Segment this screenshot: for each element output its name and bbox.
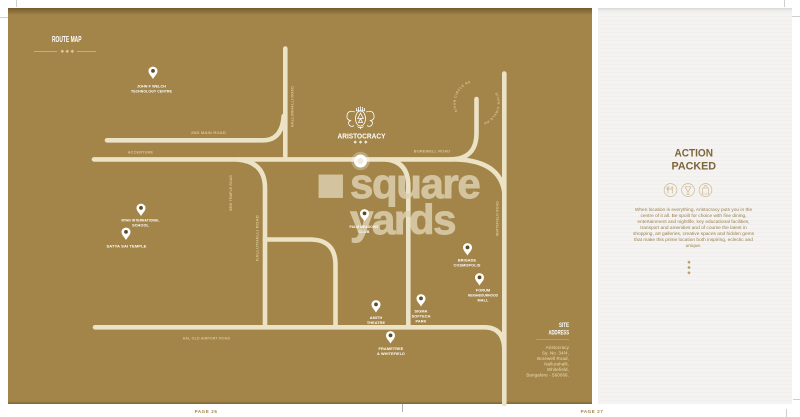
svg-text:ADDRESS: ADDRESS: [549, 330, 570, 337]
svg-text:SOFTECH: SOFTECH: [412, 315, 431, 319]
svg-text:BRIGADE: BRIGADE: [458, 259, 477, 263]
svg-text:MALL: MALL: [478, 299, 490, 303]
svg-text:JOHN F WELCH: JOHN F WELCH: [137, 85, 166, 89]
svg-text:TECHNOLOGY CENTRE: TECHNOLOGY CENTRE: [131, 90, 172, 94]
svg-text:NALLURHALLI ROAD: NALLURHALLI ROAD: [290, 86, 295, 127]
svg-text:HAL OLD AIRPORT ROAD: HAL OLD AIRPORT ROAD: [183, 336, 231, 341]
svg-text:SATYA SAI TEMPLE: SATYA SAI TEMPLE: [107, 245, 147, 249]
svg-text:ACCENTURE: ACCENTURE: [128, 150, 154, 155]
svg-text:Aristocracy: Aristocracy: [546, 345, 570, 350]
svg-text:RYAN INTERNATIONAL: RYAN INTERNATIONAL: [122, 219, 160, 223]
svg-text:Borewell Road,: Borewell Road,: [537, 356, 569, 361]
svg-text:Nallurahalli,: Nallurahalli,: [544, 362, 569, 367]
svg-text:THEATRE: THEATRE: [367, 321, 386, 325]
svg-text:FRAMETREE: FRAMETREE: [379, 347, 404, 351]
svg-text:ROUTE MAP: ROUTE MAP: [52, 35, 82, 44]
svg-text:SITE: SITE: [559, 322, 569, 329]
svg-text:FORUM: FORUM: [476, 289, 490, 293]
svg-text:Bangalore - 560066.: Bangalore - 560066.: [526, 373, 569, 378]
svg-text:PARK: PARK: [416, 320, 427, 324]
svg-text:2ND MAIN ROAD: 2ND MAIN ROAD: [191, 130, 226, 135]
svg-text:ACTION: ACTION: [675, 148, 714, 160]
svg-text:PALM MEADOWS: PALM MEADOWS: [350, 225, 379, 229]
svg-text:COSMOPOLIS: COSMOPOLIS: [454, 264, 481, 268]
svg-text:BOREWELL ROAD: BOREWELL ROAD: [414, 149, 451, 154]
svg-text:NEIGHBOURHOOD: NEIGHBOURHOOD: [468, 294, 498, 298]
svg-text:ARISTOCRACY: ARISTOCRACY: [338, 132, 386, 141]
svg-text:KALLUTHALLI ROAD: KALLUTHALLI ROAD: [255, 215, 260, 261]
svg-text:Sy. No. 34/4,: Sy. No. 34/4,: [542, 351, 569, 356]
svg-text:& WHITEFIELD: & WHITEFIELD: [377, 352, 405, 356]
svg-text:CLUB: CLUB: [359, 230, 370, 234]
svg-text:WHITEFIELD ROAD: WHITEFIELD ROAD: [495, 201, 500, 236]
svg-text:Whitefield,: Whitefield,: [547, 367, 569, 372]
svg-text:SIGMA: SIGMA: [415, 310, 428, 314]
svg-text:PACKED: PACKED: [672, 161, 717, 173]
svg-text:AMITH: AMITH: [370, 316, 383, 320]
svg-text:NEW TEMPLE ROAD: NEW TEMPLE ROAD: [228, 175, 233, 211]
svg-text:SCHOOL: SCHOOL: [132, 224, 149, 228]
